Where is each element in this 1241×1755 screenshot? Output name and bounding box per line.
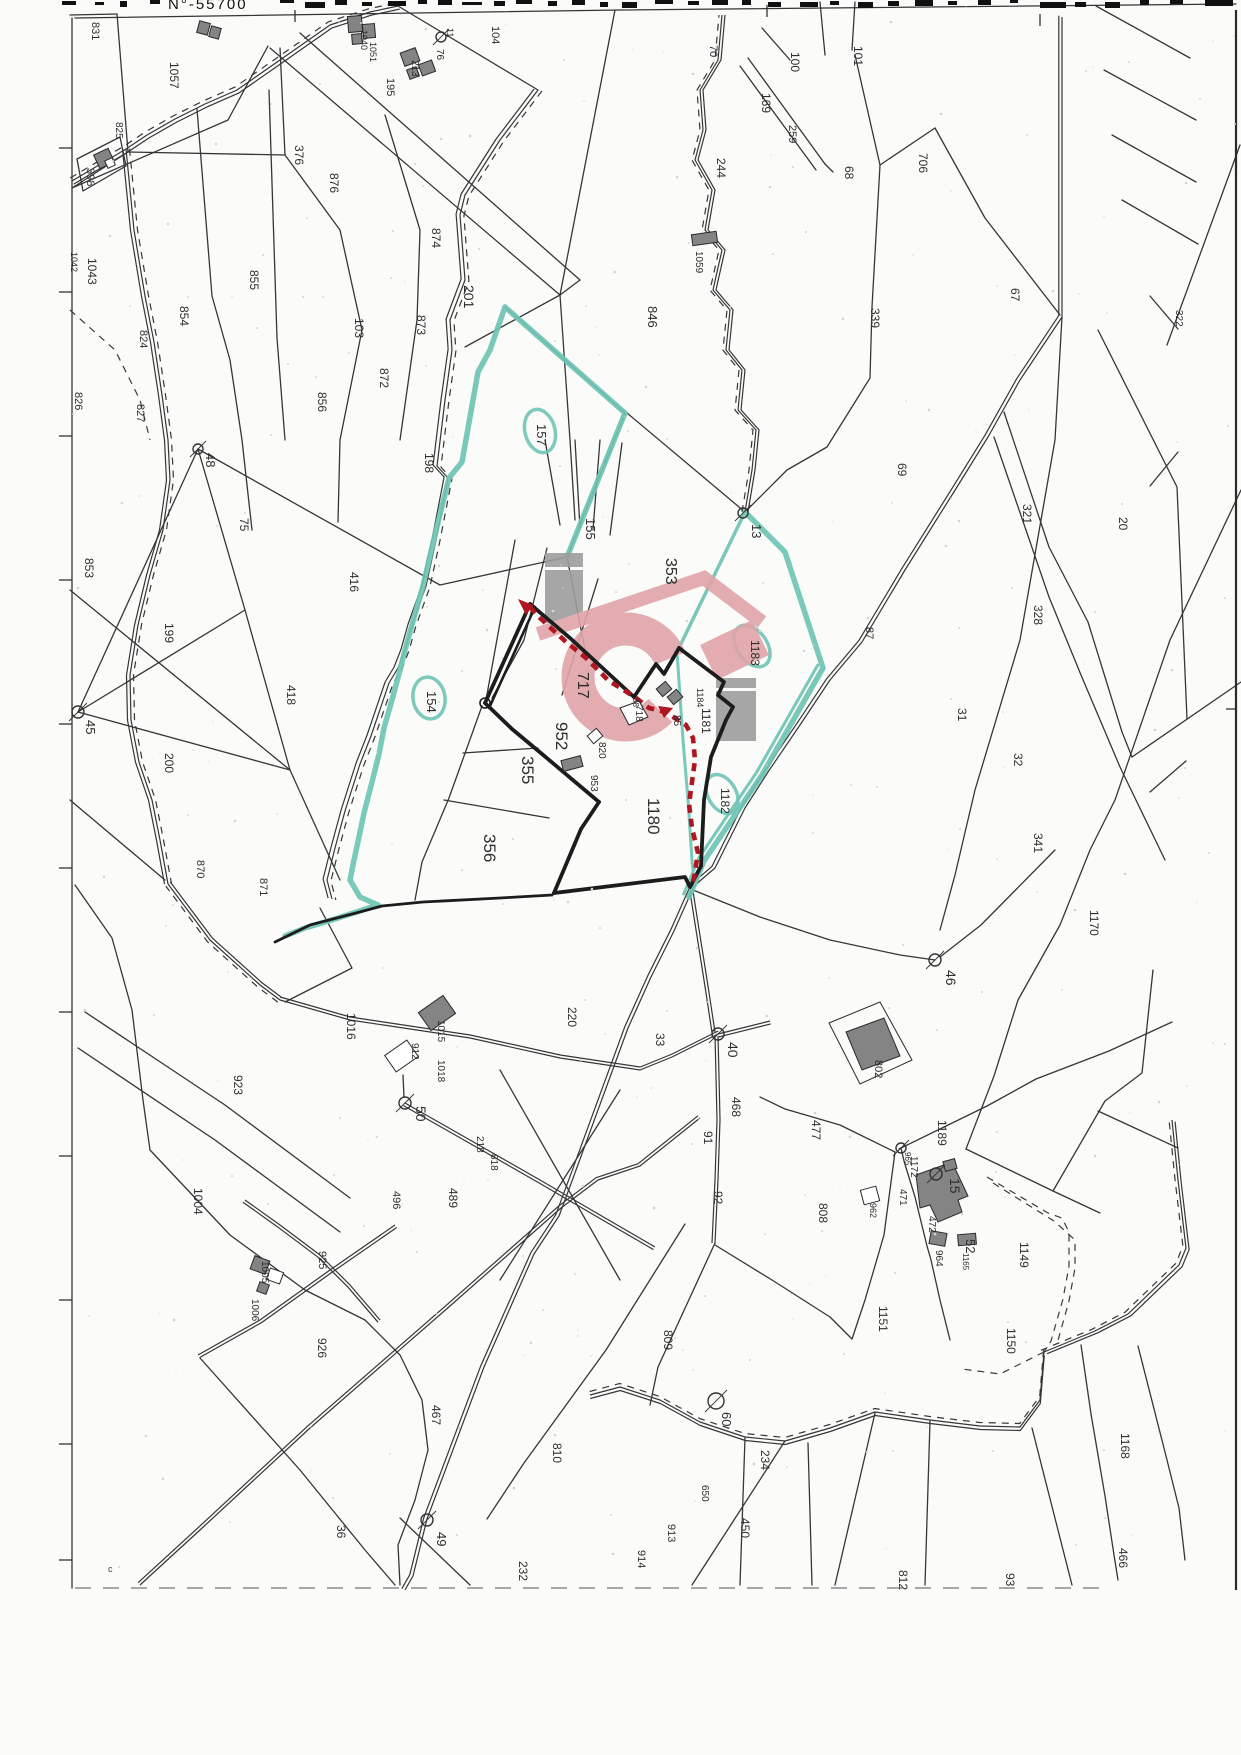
- svg-text:820: 820: [596, 742, 607, 759]
- svg-text:213: 213: [409, 60, 420, 77]
- svg-text:1040: 1040: [359, 30, 369, 50]
- svg-text:36: 36: [334, 1525, 348, 1539]
- svg-text:322: 322: [1173, 310, 1184, 327]
- svg-text:718: 718: [633, 705, 644, 722]
- svg-text:50: 50: [413, 1106, 429, 1122]
- svg-text:496: 496: [390, 1191, 402, 1209]
- svg-text:912: 912: [409, 1043, 420, 1060]
- svg-text:1168: 1168: [1118, 1433, 1132, 1459]
- svg-text:925: 925: [316, 1251, 328, 1269]
- svg-text:923: 923: [231, 1075, 245, 1095]
- svg-text:1170: 1170: [1087, 910, 1101, 936]
- svg-text:60: 60: [719, 1412, 734, 1426]
- svg-text:46: 46: [943, 970, 959, 986]
- svg-text:1059: 1059: [693, 251, 704, 274]
- svg-text:1184: 1184: [695, 688, 705, 707]
- svg-text:467: 467: [429, 1405, 443, 1425]
- svg-text:846: 846: [645, 306, 660, 328]
- svg-text:91: 91: [701, 1131, 715, 1145]
- svg-text:926: 926: [315, 1338, 329, 1358]
- svg-text:15: 15: [947, 1178, 963, 1194]
- svg-text:200: 200: [162, 753, 176, 773]
- svg-text:802: 802: [872, 1060, 884, 1078]
- svg-text:1057: 1057: [167, 62, 181, 89]
- svg-text:154: 154: [424, 691, 439, 713]
- svg-text:854: 854: [177, 306, 191, 326]
- svg-text:13: 13: [749, 524, 764, 538]
- svg-text:472: 472: [926, 1216, 937, 1233]
- svg-text:872: 872: [377, 368, 391, 388]
- svg-text:1006: 1006: [249, 1299, 260, 1322]
- svg-text:418: 418: [284, 685, 298, 705]
- svg-text:1151: 1151: [876, 1306, 890, 1332]
- svg-text:155: 155: [583, 518, 598, 540]
- svg-text:471: 471: [897, 1189, 908, 1206]
- svg-text:376: 376: [292, 145, 306, 165]
- svg-text:914: 914: [635, 1550, 647, 1568]
- svg-text:N°-55700: N°-55700: [168, 0, 248, 13]
- svg-text:870: 870: [194, 860, 206, 878]
- svg-text:32: 32: [1011, 753, 1025, 767]
- svg-text:1181: 1181: [699, 708, 713, 734]
- svg-text:398: 398: [84, 168, 96, 186]
- svg-text:92: 92: [711, 1191, 725, 1205]
- svg-text:38: 38: [631, 698, 640, 707]
- svg-text:706: 706: [916, 153, 930, 173]
- svg-text:416: 416: [347, 572, 361, 592]
- svg-text:70: 70: [707, 45, 719, 57]
- svg-text:1043: 1043: [85, 258, 99, 285]
- svg-text:198: 198: [422, 453, 436, 473]
- svg-text:339: 339: [868, 308, 882, 328]
- svg-text:466: 466: [1116, 1548, 1130, 1568]
- svg-text:353: 353: [662, 558, 679, 585]
- svg-text:199: 199: [162, 623, 176, 643]
- svg-text:31: 31: [955, 708, 969, 722]
- svg-text:1150: 1150: [1004, 1328, 1018, 1354]
- svg-text:812: 812: [896, 1570, 910, 1590]
- svg-text:1189: 1189: [935, 1120, 949, 1146]
- svg-text:157: 157: [534, 424, 549, 446]
- svg-text:1051: 1051: [368, 42, 378, 62]
- svg-text:103: 103: [352, 318, 366, 338]
- svg-text:468: 468: [729, 1097, 743, 1117]
- svg-text:220: 220: [565, 1007, 579, 1027]
- svg-text:75: 75: [237, 518, 251, 532]
- svg-text:871: 871: [257, 878, 269, 896]
- svg-text:824: 824: [137, 330, 149, 348]
- svg-text:477: 477: [809, 1120, 823, 1140]
- svg-text:717: 717: [574, 672, 591, 699]
- svg-text:825: 825: [113, 122, 124, 139]
- svg-text:650: 650: [699, 1485, 710, 1502]
- svg-text:93.: 93.: [1003, 1573, 1017, 1590]
- svg-text:1005: 1005: [259, 1261, 270, 1284]
- svg-text:355: 355: [518, 756, 537, 784]
- svg-text:831: 831: [89, 22, 101, 40]
- svg-text:48: 48: [203, 453, 218, 467]
- svg-text:1016: 1016: [344, 1013, 358, 1040]
- svg-text:855: 855: [247, 270, 261, 290]
- svg-text:1165: 1165: [961, 1253, 970, 1271]
- svg-text:33: 33: [653, 1033, 667, 1047]
- svg-text:1042: 1042: [69, 252, 79, 272]
- svg-text:328: 328: [1031, 605, 1045, 625]
- svg-text:808: 808: [816, 1203, 830, 1223]
- svg-text:953: 953: [588, 775, 599, 792]
- svg-text:874: 874: [429, 228, 443, 248]
- svg-text:218: 218: [474, 1136, 485, 1153]
- svg-text:40: 40: [725, 1042, 741, 1058]
- svg-text:952: 952: [552, 722, 571, 750]
- svg-text:201: 201: [461, 285, 477, 309]
- svg-text:195: 195: [384, 78, 396, 96]
- svg-text:101: 101: [851, 46, 865, 66]
- svg-text:69: 69: [895, 463, 909, 477]
- svg-text:876: 876: [327, 173, 341, 193]
- svg-text:489: 489: [446, 1188, 460, 1208]
- svg-text:450: 450: [738, 1518, 752, 1538]
- svg-text:67: 67: [1008, 288, 1022, 302]
- svg-text:826: 826: [72, 392, 84, 410]
- svg-text:962: 962: [868, 1203, 878, 1218]
- svg-text:321: 321: [1020, 504, 1034, 524]
- svg-text:244: 244: [714, 158, 728, 178]
- svg-text:85: 85: [671, 715, 682, 727]
- svg-text:1018: 1018: [435, 1060, 446, 1083]
- svg-text:45: 45: [83, 720, 98, 734]
- svg-text:809: 809: [661, 1330, 675, 1350]
- svg-text:87: 87: [863, 627, 875, 639]
- svg-text:20: 20: [1116, 517, 1130, 531]
- svg-text:853: 853: [82, 558, 96, 578]
- svg-text:1149: 1149: [1017, 1242, 1031, 1268]
- svg-text:232: 232: [516, 1561, 530, 1581]
- svg-text:49: 49: [434, 1532, 449, 1546]
- svg-text:52: 52: [963, 1239, 978, 1253]
- svg-text:100: 100: [788, 52, 802, 72]
- svg-text:356: 356: [480, 834, 499, 862]
- svg-text:1004: 1004: [191, 1188, 205, 1215]
- svg-text:827: 827: [134, 404, 146, 422]
- svg-text:1015: 1015: [435, 1020, 446, 1043]
- svg-text:1182: 1182: [718, 788, 732, 814]
- svg-text:1172: 1172: [908, 1156, 919, 1178]
- svg-text:873: 873: [414, 315, 428, 335]
- svg-text:1180: 1180: [644, 798, 663, 835]
- svg-text:68: 68: [842, 166, 856, 180]
- svg-text:234: 234: [758, 1450, 772, 1470]
- svg-text:259: 259: [786, 125, 798, 143]
- svg-text:76: 76: [434, 49, 445, 61]
- svg-text:810: 810: [550, 1443, 564, 1463]
- svg-text:913: 913: [665, 1524, 677, 1542]
- svg-text:341: 341: [1031, 833, 1045, 853]
- svg-text:104: 104: [489, 26, 501, 44]
- svg-text:c: c: [108, 1564, 113, 1574]
- svg-text:1183: 1183: [748, 640, 762, 666]
- svg-text:11: 11: [445, 28, 455, 37]
- svg-text:169: 169: [759, 93, 773, 113]
- svg-text:818: 818: [488, 1154, 499, 1171]
- svg-text:964: 964: [933, 1250, 944, 1267]
- svg-text:856: 856: [315, 392, 329, 412]
